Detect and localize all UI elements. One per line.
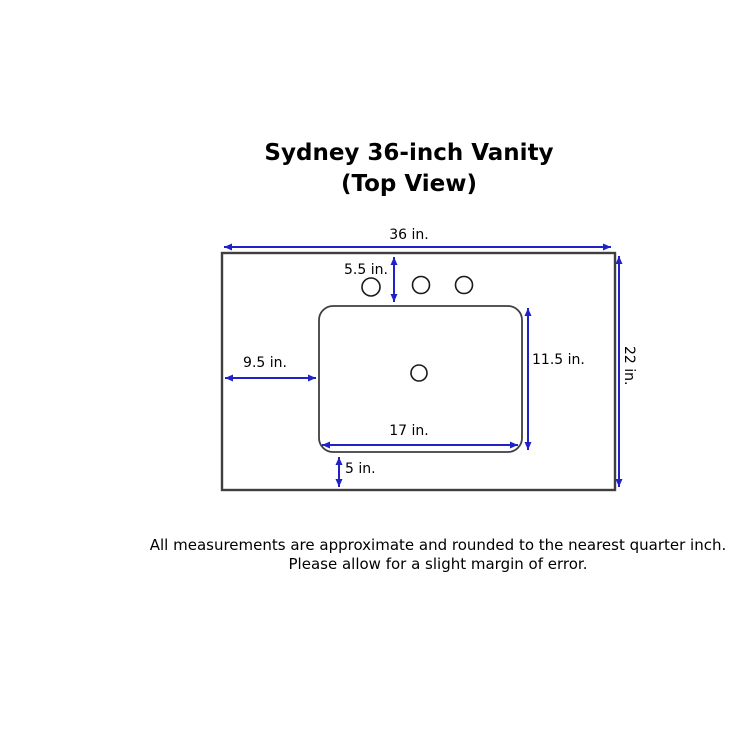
faucet-hole-center — [413, 277, 430, 294]
dim-label-overall-width: 36 in. — [359, 227, 459, 243]
disclaimer: All measurements are approximate and rou… — [138, 536, 738, 574]
faucet-hole-right — [456, 277, 473, 294]
faucet-hole-left — [362, 278, 380, 296]
drain-hole — [411, 365, 427, 381]
dim-label-faucet-offset: 5.5 in. — [344, 262, 388, 278]
dim-label-sink-width: 17 in. — [369, 423, 449, 439]
dim-label-left-offset: 9.5 in. — [230, 355, 300, 371]
dim-label-bottom-offset: 5 in. — [345, 461, 376, 477]
vanity-spec-diagram: Sydney 36-inch Vanity (Top View) 36 in. … — [0, 0, 755, 755]
dim-label-sink-depth: 11.5 in. — [532, 352, 585, 368]
disclaimer-line2: Please allow for a slight margin of erro… — [138, 555, 738, 574]
disclaimer-line1: All measurements are approximate and rou… — [138, 536, 738, 555]
vanity-top-view-drawing — [0, 0, 755, 755]
dim-label-overall-depth: 22 in. — [621, 346, 637, 390]
countertop-outline — [222, 253, 615, 490]
